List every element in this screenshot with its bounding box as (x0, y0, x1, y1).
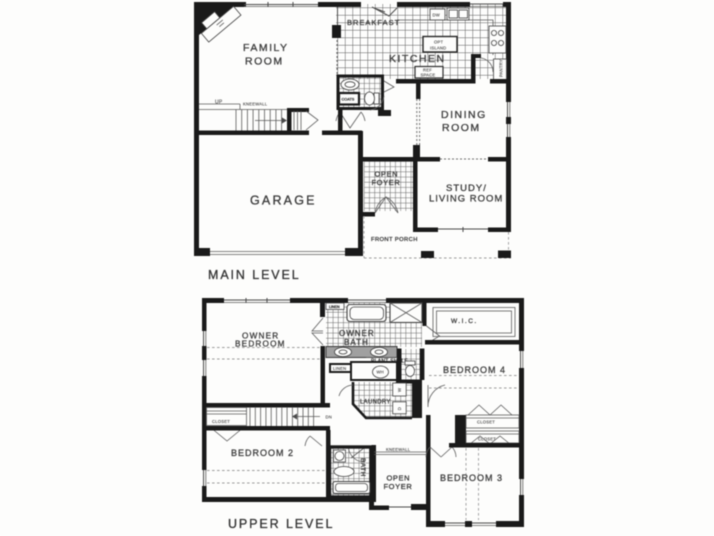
svg-text:BATH: BATH (359, 458, 366, 477)
svg-text:DN: DN (326, 415, 332, 420)
svg-text:SPACE: SPACE (421, 73, 436, 78)
svg-text:BEDROOM 4: BEDROOM 4 (443, 365, 506, 375)
svg-text:ROOM: ROOM (442, 122, 481, 134)
svg-text:LINEN: LINEN (333, 366, 346, 371)
svg-text:LAUNDRY: LAUNDRY (360, 400, 391, 406)
svg-text:DW: DW (433, 13, 440, 18)
svg-text:GARAGE: GARAGE (250, 194, 317, 208)
svg-text:BEDROOM 3: BEDROOM 3 (440, 473, 503, 483)
svg-text:WH: WH (377, 370, 384, 375)
svg-text:CLOSET: CLOSET (477, 420, 495, 425)
svg-text:BEDROOM 2: BEDROOM 2 (231, 448, 294, 458)
svg-text:W.I.C.: W.I.C. (451, 318, 478, 325)
svg-text:FRONT PORCH: FRONT PORCH (371, 237, 418, 243)
svg-text:UP: UP (215, 100, 223, 106)
svg-text:ISLAND: ISLAND (430, 46, 446, 51)
svg-text:LIVING ROOM: LIVING ROOM (429, 194, 503, 205)
svg-text:KITCHEN: KITCHEN (389, 53, 446, 65)
svg-text:FOYER: FOYER (384, 482, 413, 491)
svg-text:MAIN LEVEL: MAIN LEVEL (208, 268, 301, 282)
svg-text:CLOSET: CLOSET (212, 419, 230, 424)
svg-text:PANTRY: PANTRY (499, 59, 504, 77)
svg-text:ROOM: ROOM (245, 56, 284, 68)
svg-text:LINEN: LINEN (329, 305, 340, 309)
svg-text:STUDY/: STUDY/ (446, 183, 487, 194)
svg-text:COATS: COATS (342, 98, 355, 102)
svg-text:BEDROOM: BEDROOM (235, 340, 286, 349)
svg-text:W: W (397, 388, 402, 392)
svg-text:UPPER LEVEL: UPPER LEVEL (228, 517, 334, 531)
svg-text:OPT: OPT (434, 40, 443, 45)
svg-text:OWNER: OWNER (339, 329, 375, 338)
svg-text:DINING: DINING (441, 109, 487, 121)
svg-text:KNEEWALL: KNEEWALL (386, 447, 411, 452)
svg-text:KNEEWALL: KNEEWALL (243, 102, 268, 107)
svg-text:BREAKFAST: BREAKFAST (347, 18, 400, 27)
svg-text:FOYER: FOYER (372, 178, 401, 187)
svg-text:D: D (397, 407, 402, 410)
svg-text:BATH: BATH (344, 338, 369, 347)
svg-text:FAMILY: FAMILY (243, 42, 289, 54)
